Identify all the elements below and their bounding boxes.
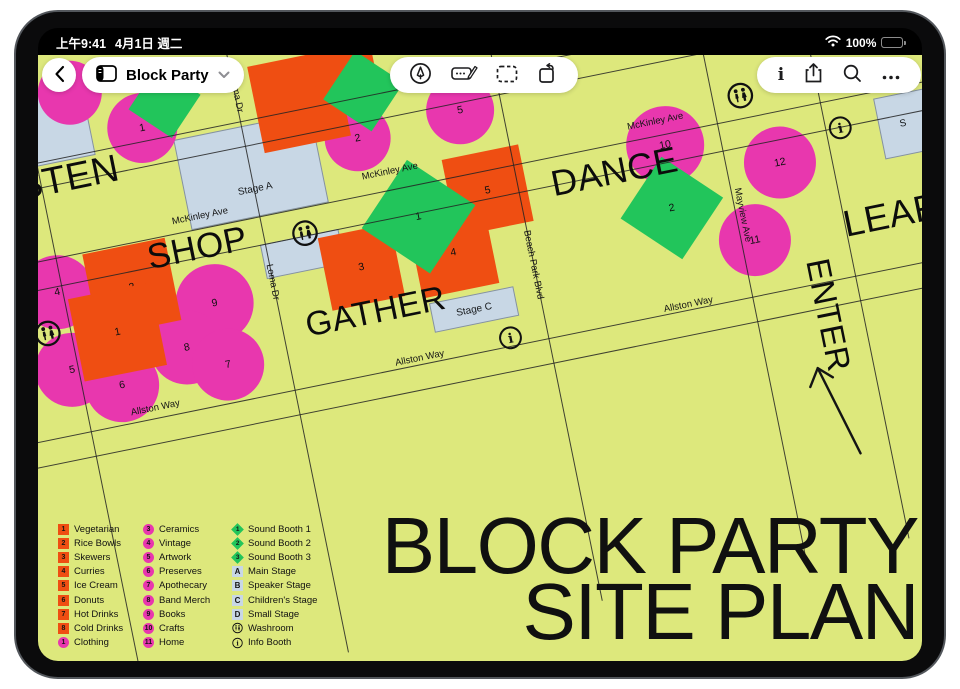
map-washroom-icon[interactable] xyxy=(724,79,756,111)
zone-label-learn[interactable]: LEARN xyxy=(840,179,922,245)
shape-number: 4 xyxy=(449,246,457,259)
tools-pill xyxy=(390,57,578,93)
ipad-frame: 上午9:414月1日 週二 100% Stage AStage CS125498… xyxy=(14,10,946,679)
more-button[interactable] xyxy=(882,68,900,83)
shape-number: 7 xyxy=(224,358,232,371)
chevron-down-icon[interactable] xyxy=(218,66,230,84)
shape-number: 2 xyxy=(354,132,362,145)
map-info-icon[interactable]: i xyxy=(496,324,524,352)
stage-label: S xyxy=(899,118,908,130)
share-icon xyxy=(805,63,822,87)
status-date: 4月1日 週二 xyxy=(115,37,182,51)
shape-number: 5 xyxy=(68,363,76,376)
shape-number: 5 xyxy=(484,184,492,197)
shape-number: 1 xyxy=(138,122,146,135)
battery-icon xyxy=(881,37,906,48)
shape-number: 3 xyxy=(357,261,365,274)
legend-badge-6: 6 xyxy=(58,595,69,606)
legend-badge-5: 5 xyxy=(58,580,69,591)
select-tool-button[interactable] xyxy=(496,65,518,86)
svg-text:i: i xyxy=(507,330,515,347)
status-time-date: 上午9:414月1日 週二 xyxy=(56,33,191,52)
legend-label: Clothing xyxy=(74,637,109,648)
street-label: Allston Way xyxy=(663,294,714,315)
map-info-icon[interactable]: i xyxy=(826,114,854,142)
shape-number: 12 xyxy=(773,156,787,170)
legend-badge-4: 4 xyxy=(58,566,69,577)
shape-number: 6 xyxy=(118,379,126,392)
board-title-text[interactable]: BLOCK PARTY SITE PLAN xyxy=(382,513,918,645)
sidebar-panel-icon xyxy=(96,65,117,85)
shape-number: 2 xyxy=(668,202,676,215)
status-bar: 上午9:414月1日 週二 100% xyxy=(38,28,922,55)
markup-tool-button[interactable] xyxy=(451,63,478,87)
legend-badge-2: 2 xyxy=(58,538,69,549)
markup-pencil-icon xyxy=(451,63,478,87)
title-pill: Block Party xyxy=(82,57,244,93)
freeform-canvas[interactable]: Stage AStage CS1254987561012112134512iiM… xyxy=(38,55,922,661)
rotate-object-icon xyxy=(537,63,559,88)
search-icon xyxy=(843,64,862,86)
battery-percent: 100% xyxy=(846,36,877,50)
selection-marquee-icon xyxy=(496,65,518,86)
shape-number: 8 xyxy=(183,341,191,354)
stage-label: Stage C xyxy=(455,300,493,318)
ellipsis-icon xyxy=(882,68,900,83)
shape-number: 1 xyxy=(113,326,121,339)
screen: 上午9:414月1日 週二 100% Stage AStage CS125498… xyxy=(38,28,922,661)
map-square-1[interactable]: 1 xyxy=(68,283,167,382)
board-title[interactable]: Block Party xyxy=(126,67,209,84)
chevron-left-icon xyxy=(54,65,65,86)
shape-number: 9 xyxy=(211,297,219,310)
info-button[interactable]: i xyxy=(778,67,784,84)
legend-badge-7: 7 xyxy=(58,609,69,620)
share-button[interactable] xyxy=(805,63,822,87)
search-button[interactable] xyxy=(843,64,862,86)
wifi-icon xyxy=(825,35,841,50)
legend-badge-1: 1 xyxy=(58,524,69,535)
sidebar-toggle-button[interactable] xyxy=(96,65,117,85)
map-washroom-icon[interactable] xyxy=(288,217,320,249)
info-icon: i xyxy=(778,67,784,84)
pen-compass-icon xyxy=(409,62,432,88)
status-indicators: 100% xyxy=(825,35,906,50)
back-button[interactable] xyxy=(42,58,76,92)
map-circle-11[interactable]: 11 xyxy=(712,198,797,283)
actions-pill: i xyxy=(757,57,921,93)
status-time: 上午9:41 xyxy=(56,37,106,51)
svg-text:i: i xyxy=(836,120,844,137)
legend-badge-1: 1 xyxy=(58,637,69,648)
pen-tool-button[interactable] xyxy=(409,62,432,88)
shape-number: 5 xyxy=(456,104,464,117)
legend-badge-3: 3 xyxy=(58,552,69,563)
rotate-tool-button[interactable] xyxy=(537,63,559,88)
street-label: Beach Park Blvd xyxy=(521,229,546,300)
legend-badge-8: 8 xyxy=(58,623,69,634)
zone-label-enter[interactable]: ENTER xyxy=(798,255,858,375)
